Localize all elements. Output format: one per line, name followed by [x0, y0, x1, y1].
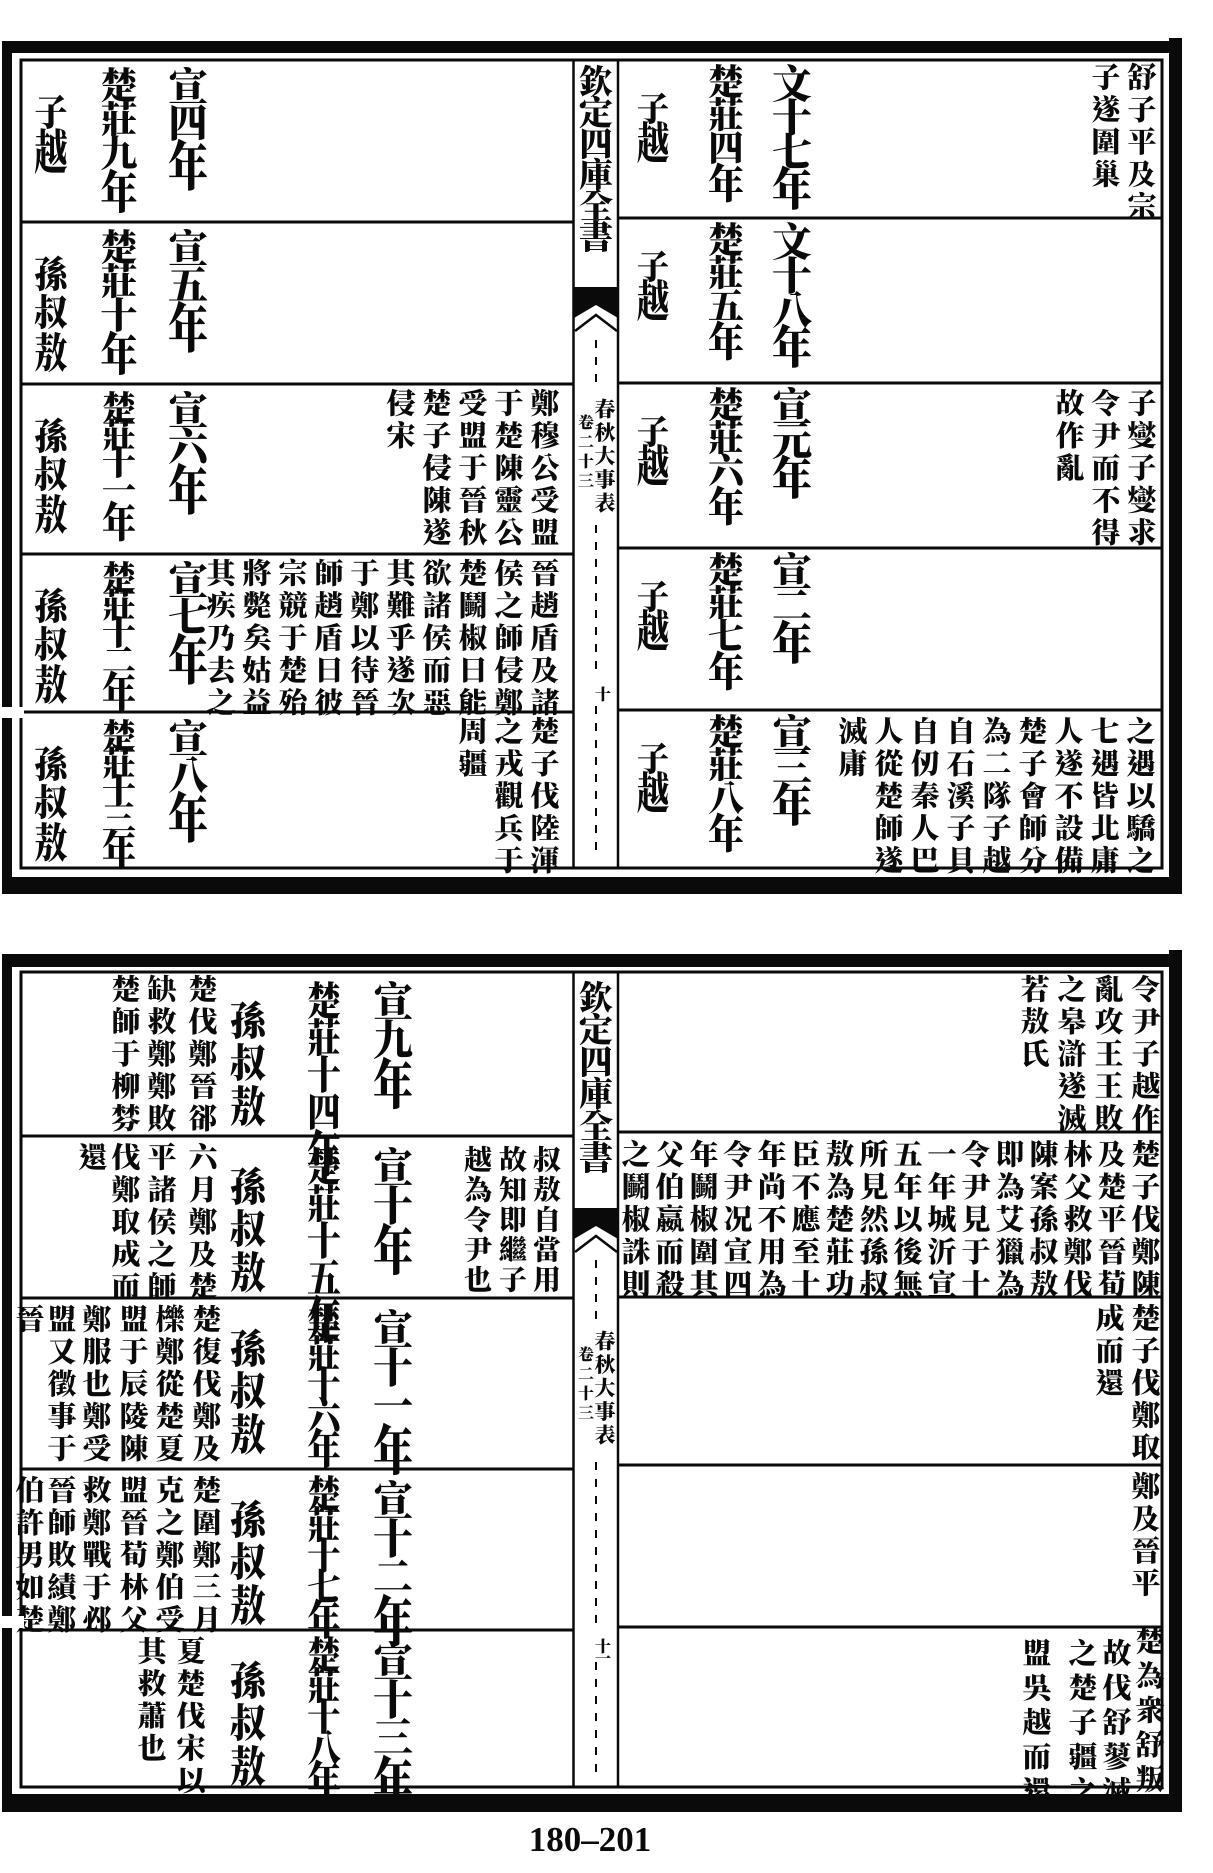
svg-text:180–201: 180–201 [529, 1820, 652, 1859]
